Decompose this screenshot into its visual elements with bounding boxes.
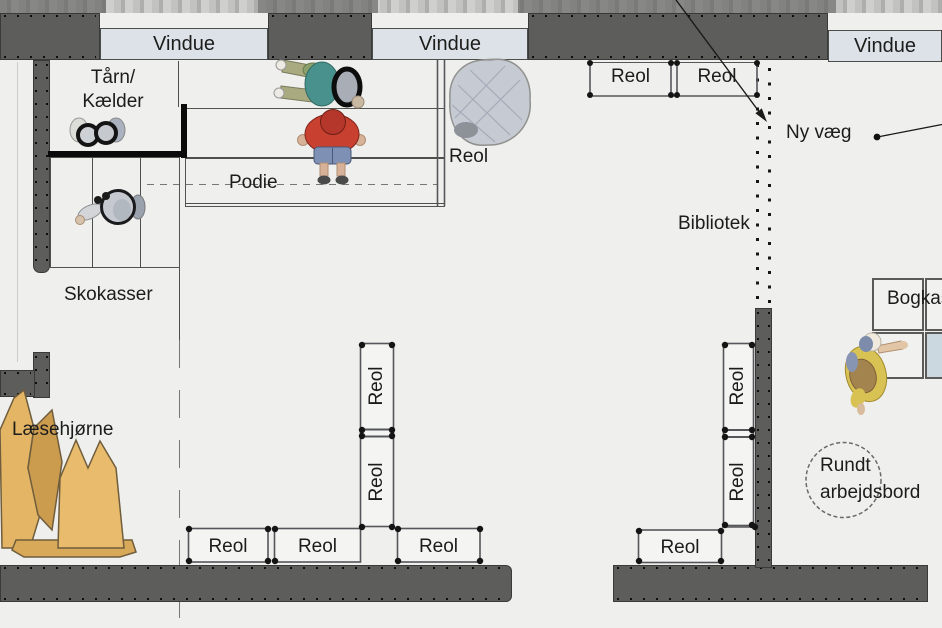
window-2-label: Vindue bbox=[419, 33, 481, 56]
podium-step-line-2 bbox=[185, 203, 445, 204]
figure-lying-kid bbox=[274, 60, 364, 108]
wall-top-right bbox=[528, 13, 828, 60]
shelf-label-mid-col-2: Reol bbox=[366, 440, 388, 524]
podium-step-line-1 bbox=[185, 157, 445, 159]
podium-dashed-line bbox=[147, 184, 437, 185]
facade-shadow bbox=[0, 0, 106, 13]
new-wall-label: Ny væg bbox=[786, 121, 851, 145]
wall-left-leg bbox=[33, 60, 50, 273]
book-boxes-cell-4 bbox=[925, 332, 942, 379]
tower-basement-label: Tårn/ Kælder bbox=[53, 66, 173, 114]
window-3: Vindue bbox=[828, 30, 942, 62]
new-wall-dotted-line-right bbox=[768, 68, 771, 310]
window-1-label: Vindue bbox=[153, 33, 215, 56]
new-wall-leader bbox=[874, 125, 942, 141]
shelf-label-mid-col-1: Reol bbox=[366, 344, 388, 428]
shelf-label-podium-side: Reol bbox=[449, 145, 488, 169]
floor-plan: Vindue Vindue Vindue bbox=[0, 0, 942, 628]
facade-shadow bbox=[258, 0, 378, 13]
shoe-boxes-outline bbox=[50, 157, 180, 268]
wall-top-left bbox=[0, 13, 100, 60]
tower-room-edge bbox=[178, 61, 179, 107]
library-label: Bibliotek bbox=[678, 212, 750, 236]
tower-line1: Tårn/ bbox=[53, 66, 173, 90]
round-table-line2: arbejdsbord bbox=[820, 479, 920, 506]
new-wall-dotted-line-left bbox=[756, 64, 759, 310]
shelf-label-bottom-2: Reol bbox=[275, 535, 360, 559]
book-boxes-cell-3 bbox=[872, 332, 924, 379]
wall-top-middle bbox=[268, 13, 372, 60]
shoe-boxes-divider-2 bbox=[140, 157, 141, 268]
tower-line2: Kælder bbox=[53, 90, 173, 114]
facade-shadow bbox=[518, 0, 836, 13]
round-table-line1: Rundt bbox=[820, 452, 920, 479]
shelf-label-top-right-2: Reol bbox=[677, 65, 757, 89]
shelf-label-right-col-2: Reol bbox=[727, 440, 749, 524]
gray-beanbag bbox=[450, 59, 530, 145]
shoe-boxes-divider-1 bbox=[92, 157, 93, 268]
tower-thick-line bbox=[48, 151, 187, 157]
round-table-label: Rundt arbejdsbord bbox=[820, 452, 920, 506]
window-3-label: Vindue bbox=[854, 35, 916, 58]
shelf-label-bottom-1: Reol bbox=[188, 535, 268, 559]
podium-thick-corner-v bbox=[181, 104, 187, 158]
podium-label: Podie bbox=[229, 171, 278, 195]
shelf-label-right-col-1: Reol bbox=[727, 344, 749, 428]
wall-bottom-left bbox=[0, 565, 512, 602]
corridor-line bbox=[17, 62, 18, 362]
wall-left-l-bar bbox=[0, 370, 35, 397]
wall-left-l-notch bbox=[33, 352, 50, 398]
shelf-label-right-bottom: Reol bbox=[638, 536, 722, 560]
book-boxes-label: Bogkasser bbox=[887, 287, 942, 311]
wall-library-divider bbox=[755, 308, 772, 568]
window-2: Vindue bbox=[372, 28, 528, 60]
shelf-label-top-right-1: Reol bbox=[590, 65, 671, 89]
window-1: Vindue bbox=[100, 28, 268, 60]
wall-bottom-right bbox=[613, 565, 928, 602]
construction-line-solid bbox=[179, 267, 180, 340]
shelf-label-bottom-3: Reol bbox=[397, 535, 480, 559]
reading-corner-label: Læsehjørne bbox=[12, 418, 113, 442]
yellow-beanbags bbox=[0, 390, 136, 557]
figure-tower-kids bbox=[70, 118, 125, 145]
shoe-boxes-label: Skokasser bbox=[64, 283, 153, 307]
